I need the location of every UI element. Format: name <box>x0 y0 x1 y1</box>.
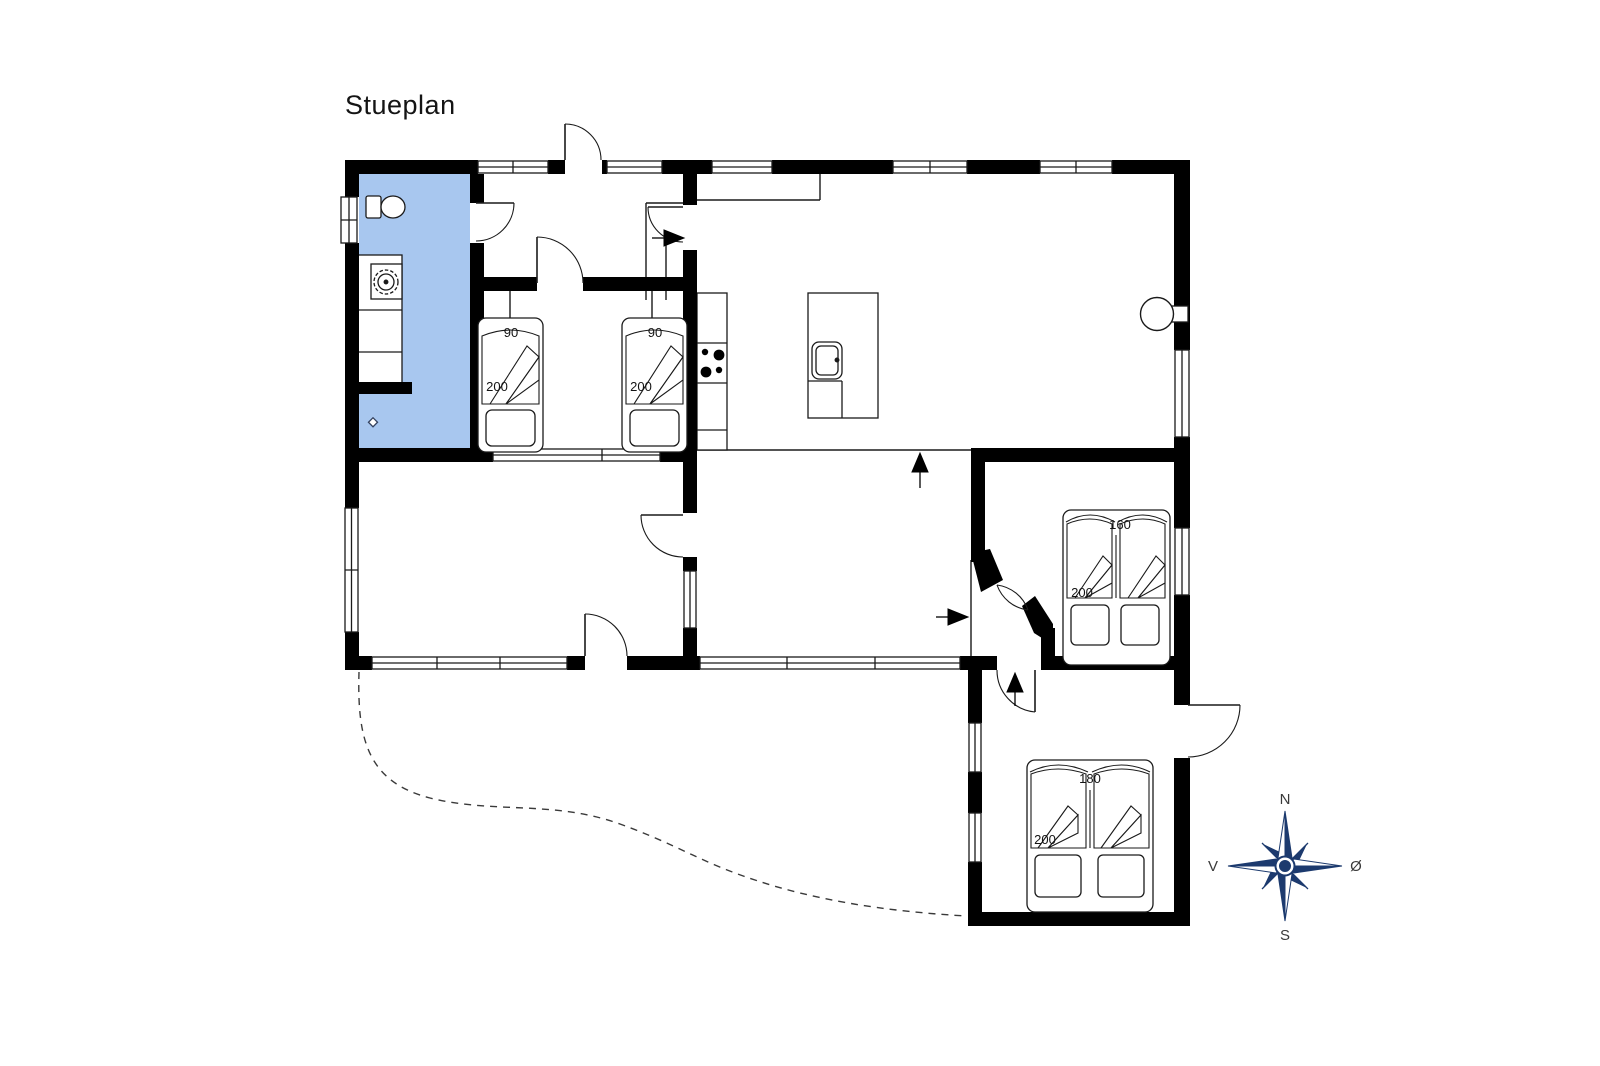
bath-sink-drain <box>384 280 388 284</box>
window-top-2 <box>607 161 662 173</box>
bathroom-stub-wall <box>358 382 412 394</box>
garden-door <box>585 614 627 656</box>
bed-width-label: 160 <box>1109 517 1131 532</box>
floorplan-svg: 90 200 90 200 160 200 <box>0 0 1600 1066</box>
bed-leader-lines <box>510 291 652 318</box>
bed-length-label: 200 <box>1071 585 1093 600</box>
bed-width-label: 180 <box>1079 771 1101 786</box>
window-top-1 <box>478 161 548 173</box>
bed-width-label: 90 <box>648 325 662 340</box>
bathroom-door <box>476 203 514 241</box>
toilet-bowl <box>381 196 405 218</box>
island-sink-tap <box>835 358 839 362</box>
kitchen-zone-line <box>697 174 820 200</box>
bed-double-180: 180 200 <box>1027 760 1153 912</box>
bedroom-door <box>537 237 583 283</box>
window-annex-left-2 <box>969 813 981 862</box>
bed-width-label: 90 <box>504 325 518 340</box>
bed-length-label: 200 <box>486 379 508 394</box>
window-bathroom-left <box>341 197 357 243</box>
window-left-lower <box>345 508 358 632</box>
arrow-annex-north <box>1007 673 1023 706</box>
annex-exterior-door <box>1188 705 1240 757</box>
arrow-vestibule-east <box>652 230 684 246</box>
window-top-5 <box>1040 161 1112 173</box>
compass-rose: N S V Ø <box>1208 791 1362 944</box>
bed-double-160: 160 200 <box>1063 510 1170 665</box>
bed-length-label: 200 <box>1034 832 1056 847</box>
window-bottom-middle <box>700 657 960 669</box>
bed-single-right: 90 200 <box>622 318 687 452</box>
window-top-3 <box>712 161 772 173</box>
arrow-living-north <box>912 453 928 488</box>
thin-lines <box>510 174 971 656</box>
page-title: Stueplan <box>345 90 456 121</box>
window-top-4 <box>893 161 967 173</box>
entrance-door <box>565 124 601 160</box>
middle-room-door <box>641 515 683 557</box>
bed-single-left: 90 200 <box>478 318 543 452</box>
compass-hub <box>1280 861 1291 872</box>
arrow-hall-east <box>936 609 968 625</box>
compass-south-label: S <box>1280 927 1290 944</box>
diagonal-wall-lower <box>1022 596 1053 645</box>
window-bottom-left <box>372 657 567 669</box>
window-right-living <box>1175 350 1189 437</box>
window-annex-left-1 <box>969 723 981 772</box>
window-right-bedroom160 <box>1175 528 1189 595</box>
compass-north-label: N <box>1280 791 1291 808</box>
toilet-tank <box>366 196 381 218</box>
site-boundary-dashed-path <box>359 672 966 916</box>
compass-west-label: V <box>1208 858 1218 875</box>
compass-east-label: Ø <box>1350 858 1362 875</box>
window-interior-wall <box>684 571 696 628</box>
kitchen-fixtures <box>697 293 878 450</box>
bed-length-label: 200 <box>630 379 652 394</box>
floorplan-page: Stueplan <box>0 0 1600 1066</box>
